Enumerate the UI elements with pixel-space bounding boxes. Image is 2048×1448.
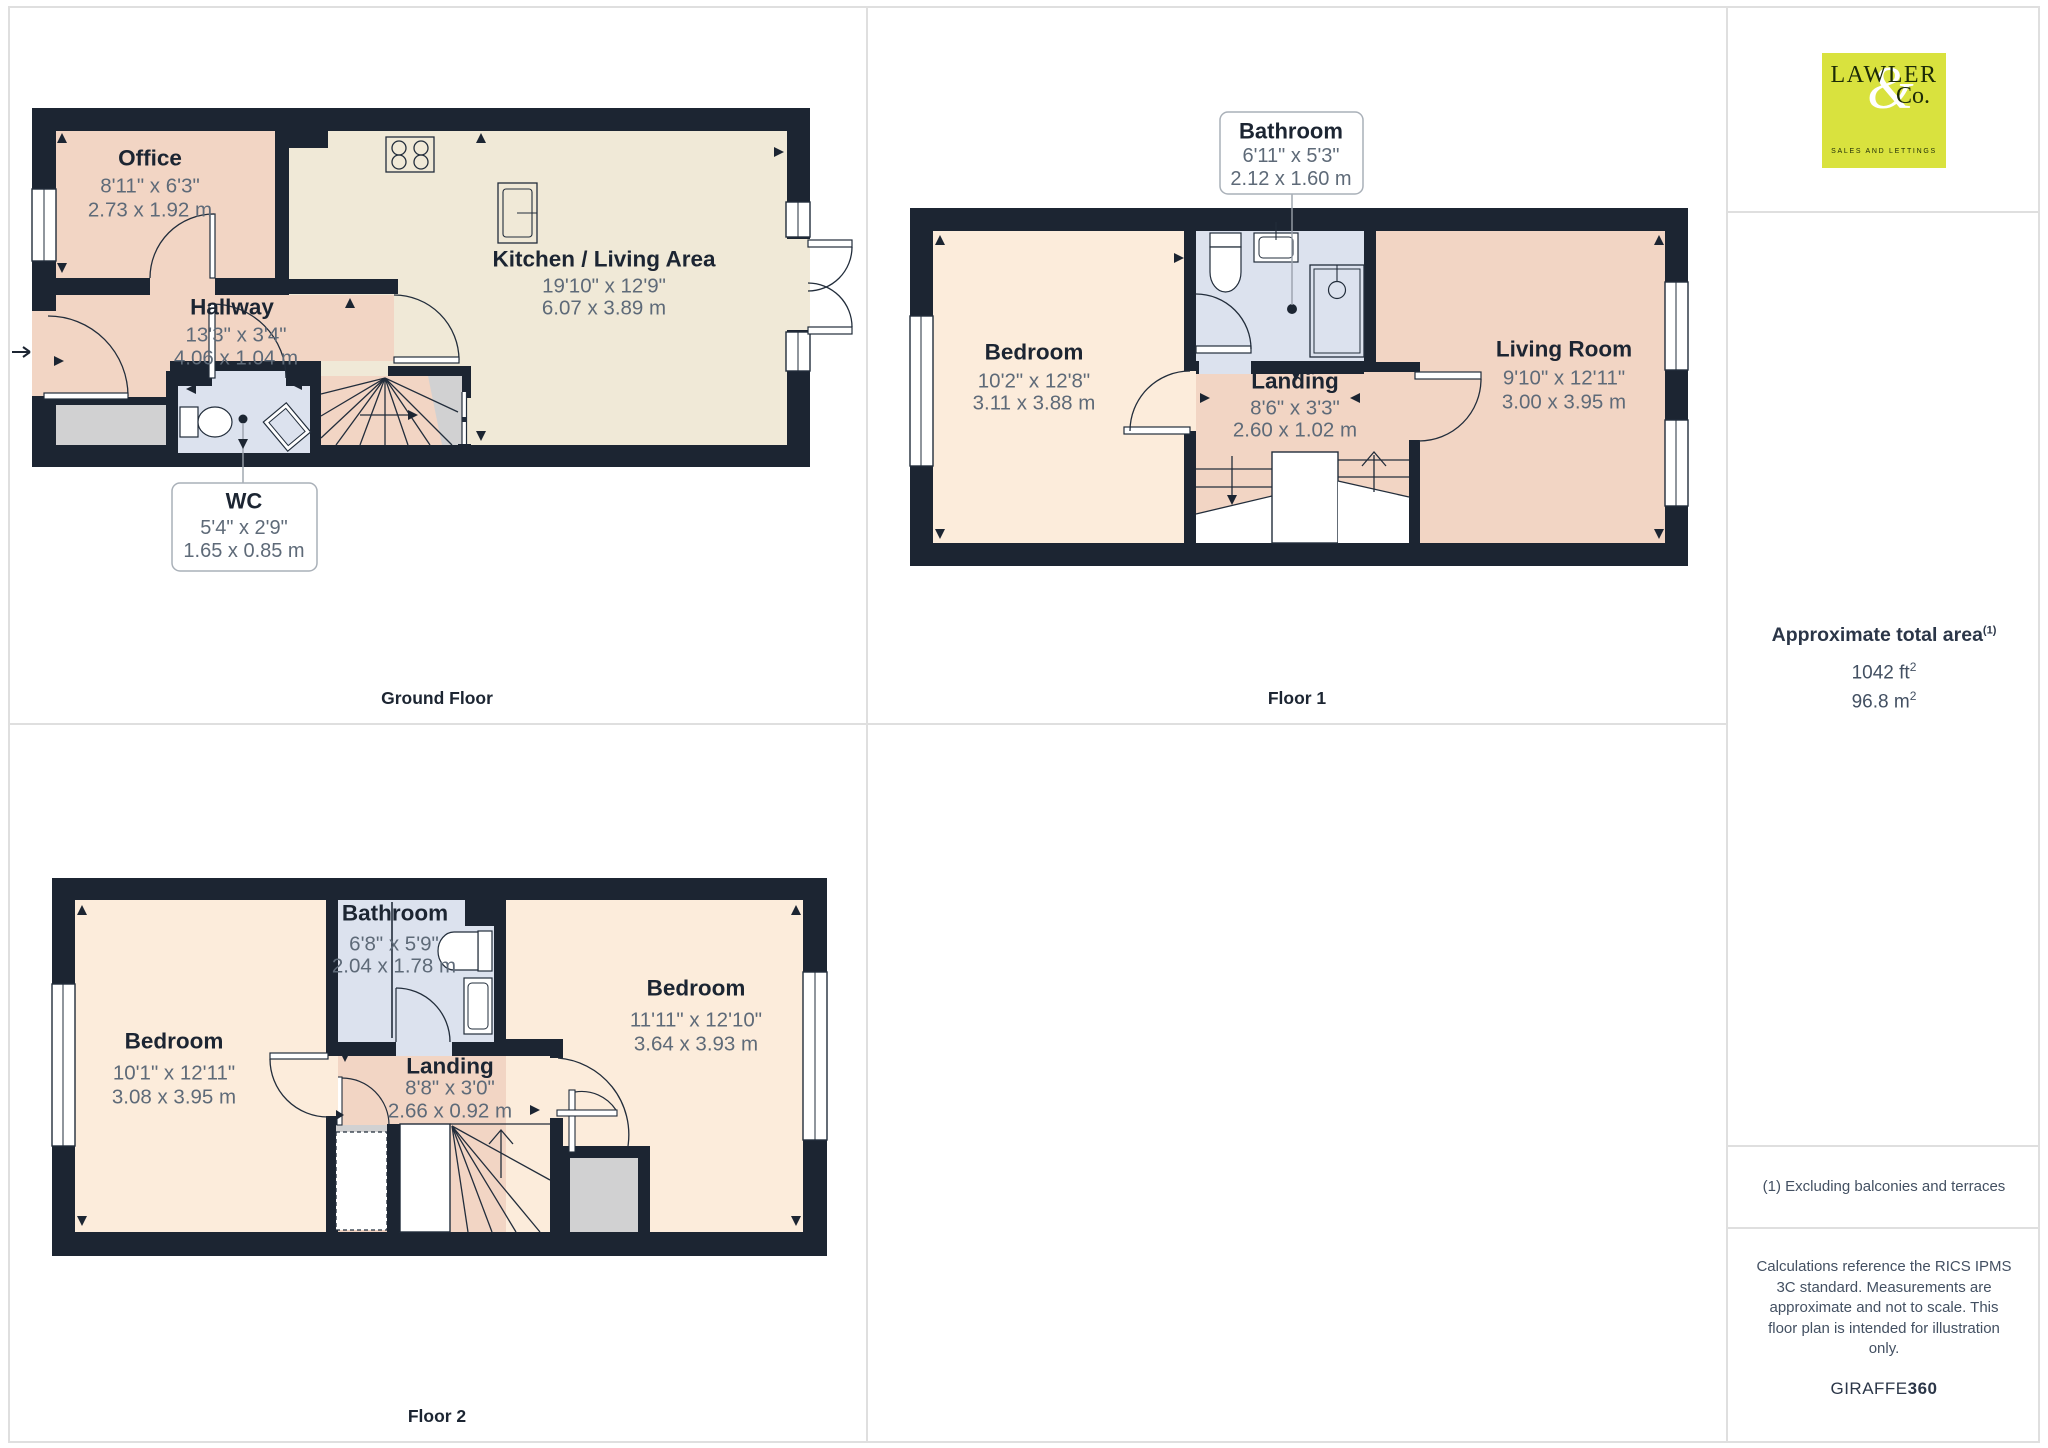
svg-text:6'11" x 5'3": 6'11" x 5'3" (1242, 145, 1339, 167)
svg-text:19'10" x 12'9": 19'10" x 12'9" (542, 275, 666, 298)
svg-text:Office: Office (118, 146, 182, 171)
svg-text:WC: WC (226, 489, 263, 514)
svg-text:Bedroom: Bedroom (985, 340, 1084, 365)
svg-text:1.65 x 0.85 m: 1.65 x 0.85 m (183, 540, 304, 562)
svg-text:2.04 x 1.78 m: 2.04 x 1.78 m (332, 955, 456, 978)
svg-text:10'1" x 12'11": 10'1" x 12'11" (113, 1062, 235, 1085)
svg-text:Floor 2: Floor 2 (408, 1406, 467, 1426)
svg-text:Hallway: Hallway (190, 295, 274, 320)
svg-text:5'4" x 2'9": 5'4" x 2'9" (200, 517, 287, 539)
svg-text:3.08 x 3.95 m: 3.08 x 3.95 m (112, 1086, 236, 1109)
svg-text:13'3" x 3'4": 13'3" x 3'4" (185, 324, 286, 347)
svg-text:11'11" x 12'10": 11'11" x 12'10" (630, 1009, 762, 1032)
svg-text:3.11 x 3.88 m: 3.11 x 3.88 m (973, 392, 1096, 415)
svg-text:Living Room: Living Room (1496, 337, 1632, 362)
svg-text:8'8" x 3'0": 8'8" x 3'0" (405, 1077, 495, 1100)
svg-text:2.12 x 1.60 m: 2.12 x 1.60 m (1230, 168, 1351, 190)
svg-text:2.66 x 0.92 m: 2.66 x 0.92 m (388, 1100, 512, 1123)
svg-text:3.00 x 3.95 m: 3.00 x 3.95 m (1502, 391, 1626, 414)
svg-text:Landing: Landing (1251, 369, 1338, 394)
svg-text:Kitchen / Living Area: Kitchen / Living Area (493, 247, 716, 272)
svg-text:4.06 x 1.04 m: 4.06 x 1.04 m (174, 347, 298, 370)
svg-text:10'2" x 12'8": 10'2" x 12'8" (978, 370, 1090, 393)
svg-text:6'8" x 5'9": 6'8" x 5'9" (349, 933, 439, 956)
svg-text:Bathroom: Bathroom (342, 901, 448, 926)
svg-text:8'11" x 6'3": 8'11" x 6'3" (100, 175, 200, 198)
svg-text:8'6" x 3'3": 8'6" x 3'3" (1250, 397, 1340, 420)
svg-text:Landing: Landing (406, 1054, 493, 1079)
svg-text:3.64 x 3.93 m: 3.64 x 3.93 m (634, 1033, 758, 1056)
svg-text:Bedroom: Bedroom (125, 1029, 224, 1054)
svg-text:Bathroom: Bathroom (1239, 119, 1343, 144)
svg-text:6.07 x 3.89 m: 6.07 x 3.89 m (542, 297, 666, 320)
svg-text:Bedroom: Bedroom (647, 976, 746, 1001)
svg-text:2.73 x 1.92 m: 2.73 x 1.92 m (88, 199, 212, 222)
svg-text:9'10" x 12'11": 9'10" x 12'11" (1503, 367, 1625, 390)
svg-text:Floor 1: Floor 1 (1268, 688, 1327, 708)
svg-text:2.60 x 1.02 m: 2.60 x 1.02 m (1233, 419, 1357, 442)
svg-text:Ground Floor: Ground Floor (381, 688, 493, 708)
